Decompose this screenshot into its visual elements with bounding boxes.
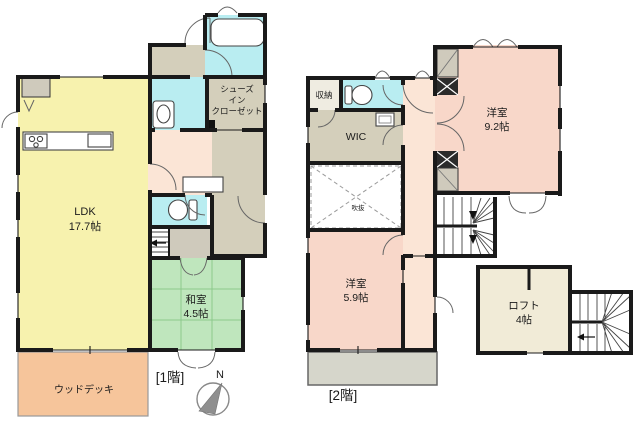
room-oshiire-closet bbox=[169, 227, 212, 258]
wic-counter bbox=[376, 113, 394, 126]
label-shoes-closet-2: イン bbox=[228, 95, 245, 105]
sink-icon bbox=[88, 134, 111, 147]
room-wood-deck bbox=[18, 352, 148, 416]
entrance-step bbox=[183, 177, 223, 192]
label-washitsu-name: 和室 bbox=[186, 293, 207, 306]
floor-plan-drawing: LDK 17.7帖 和室 4.5帖 シューズ イン クローゼット ウッドデッキ … bbox=[0, 0, 639, 426]
label-wic: WIC bbox=[346, 131, 367, 143]
label-floor1: [1階] bbox=[156, 370, 185, 385]
label-western-large-size: 9.2帖 bbox=[484, 120, 510, 133]
label-ldk-size: 17.7帖 bbox=[69, 220, 101, 233]
label-floor2: [2階] bbox=[329, 388, 358, 403]
bathtub-icon bbox=[211, 19, 264, 46]
shoes-closet-door-mark bbox=[209, 120, 215, 129]
kitchen-counter bbox=[23, 132, 113, 150]
label-loft-size: 4帖 bbox=[516, 313, 533, 326]
room-entrance bbox=[212, 130, 265, 256]
compass-north-icon: N bbox=[197, 369, 229, 415]
label-storage-2f: 収納 bbox=[315, 90, 332, 100]
room-hall-2f bbox=[403, 78, 435, 352]
label-void: 吹抜 bbox=[352, 203, 366, 212]
room-utility bbox=[150, 45, 207, 77]
label-shoes-closet-1: シューズ bbox=[220, 84, 254, 94]
washbasin-icon bbox=[153, 101, 174, 128]
label-western-small-name: 洋室 bbox=[346, 277, 367, 290]
label-western-small-size: 5.9帖 bbox=[343, 291, 369, 304]
label-shoes-closet-3: クローゼット bbox=[211, 106, 262, 116]
compass-n-label: N bbox=[216, 369, 224, 381]
toilet-icon bbox=[169, 200, 198, 220]
floor-plan-canvas: LDK 17.7帖 和室 4.5帖 シューズ イン クローゼット ウッドデッキ … bbox=[0, 0, 639, 426]
label-loft-name: ロフト bbox=[508, 300, 540, 312]
toilet-2f-icon bbox=[345, 86, 372, 105]
label-ldk-name: LDK bbox=[74, 206, 96, 218]
room-balcony bbox=[308, 352, 437, 385]
room-western-small bbox=[308, 230, 403, 350]
label-western-large-name: 洋室 bbox=[487, 106, 508, 119]
label-wood-deck: ウッドデッキ bbox=[54, 383, 114, 396]
label-washitsu-size: 4.5帖 bbox=[183, 307, 209, 320]
